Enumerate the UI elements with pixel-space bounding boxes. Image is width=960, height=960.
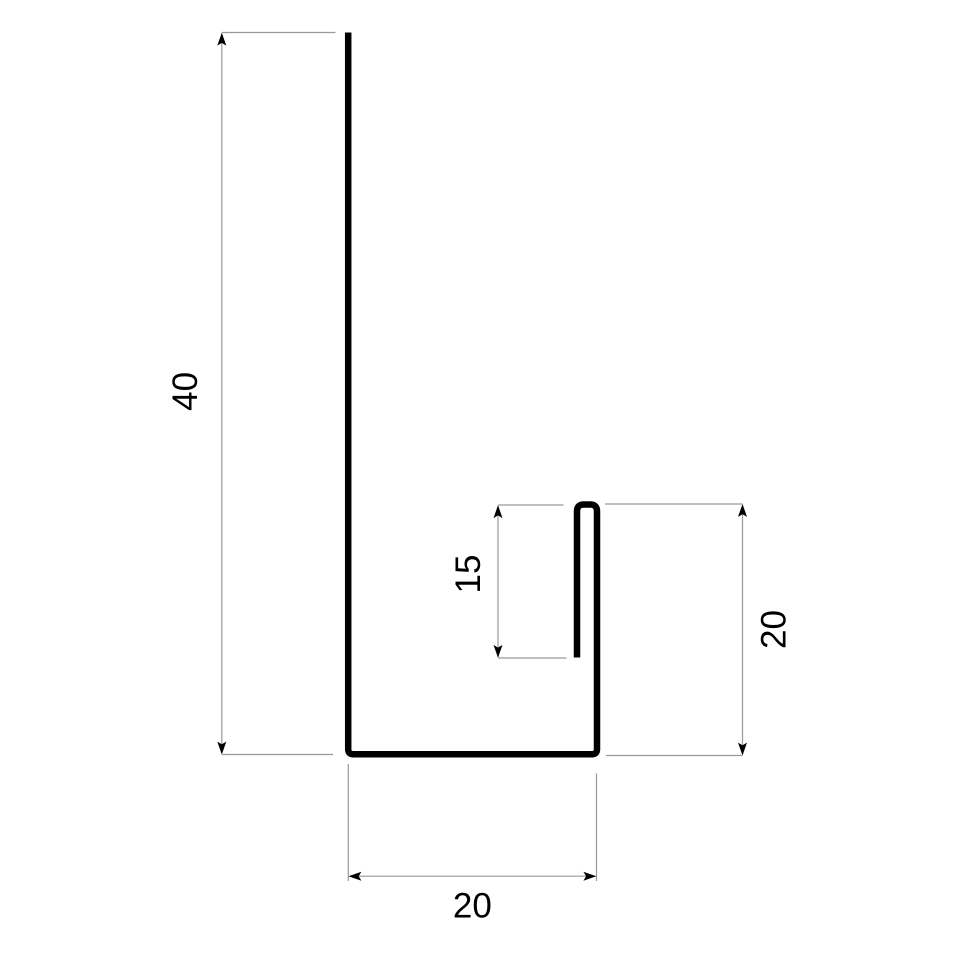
- svg-text:20: 20: [453, 887, 492, 926]
- svg-text:20: 20: [755, 610, 794, 649]
- svg-text:15: 15: [449, 555, 488, 594]
- svg-text:40: 40: [166, 372, 205, 411]
